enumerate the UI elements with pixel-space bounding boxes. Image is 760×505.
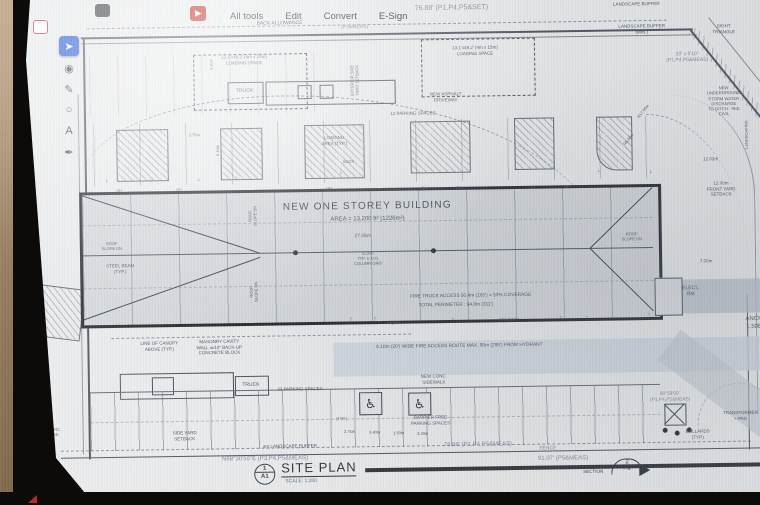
plan-label: ↑ xyxy=(559,316,562,324)
acrobat-logo-icon[interactable] xyxy=(190,6,206,21)
loading-area-hatch xyxy=(304,124,365,179)
parking-row-north xyxy=(93,116,654,186)
plan-label: ↓ xyxy=(339,170,342,178)
plan-label: BARRIER FREE PARKING SPACES xyxy=(411,414,450,426)
plan-label: ROOF SLOPE DN xyxy=(248,282,258,302)
plan-label: 78.88' (P1,P4,P5&MEAS) xyxy=(444,441,512,450)
quick-tools-panel: ➤◉✎○A✒ xyxy=(58,36,80,164)
acrobat-menu-bar: All toolsEditConvertE-Sign xyxy=(230,6,429,24)
plan-label: 12 PARKING SPACES xyxy=(390,110,435,116)
wheelchair-glyph: ♿ xyxy=(414,396,426,412)
menu-item-e-sign[interactable]: E-Sign xyxy=(379,11,408,22)
plan-label: 88°59'00" (P1,P4,P5&MEAS) xyxy=(650,391,690,404)
plan-label: 6.10m TYP. U.N.O. COLUMN GRID xyxy=(354,250,383,265)
landscape-island xyxy=(220,128,263,181)
plan-label: ↓ xyxy=(105,178,108,186)
comment-tool[interactable]: ◉ xyxy=(60,59,78,77)
pencil-tool[interactable]: ✎ xyxy=(60,80,78,98)
menu-item-all-tools[interactable]: All tools xyxy=(230,11,263,22)
plan-label: 3.40m xyxy=(369,430,380,435)
wheelchair-icon: ♿ xyxy=(359,392,382,415)
plan-label: LINE OF CANOPY ABOVE (TYP.) xyxy=(140,340,178,352)
plan-label: ROOF SLOPE DN xyxy=(622,231,642,241)
plan-label: ↑ xyxy=(451,317,454,325)
plan-label: OH xyxy=(456,186,461,190)
plan-label: (P5&MEAS) xyxy=(341,24,368,31)
bollard xyxy=(675,431,680,436)
plan-label: OH xyxy=(564,185,569,189)
plan-label: TOTAL PERIMETER : 94.8m (311') xyxy=(418,302,493,309)
plan-label: OH xyxy=(116,189,121,193)
landscape-island xyxy=(514,117,555,170)
section-sheet: A1 xyxy=(624,465,631,471)
wheelchair-glyph: ♿ xyxy=(365,396,377,412)
plan-label: WALKWAY xyxy=(499,316,519,321)
plan-label: OH xyxy=(326,187,331,191)
plan-annotations: BACK ALLOWANCE76.88' (P1,P4,P5&SET)(P5&M… xyxy=(0,0,756,6)
plan-label: 12.02m xyxy=(703,156,718,162)
shape-tool[interactable]: ○ xyxy=(60,101,78,119)
plan-label: ↑ xyxy=(349,317,352,325)
plan-label: 4.30m xyxy=(209,59,214,70)
plan-label: NEW UNDERGROUND STORM WATER DISCHARGE TO… xyxy=(707,85,741,117)
menu-item-convert[interactable]: Convert xyxy=(324,11,357,22)
plan-label: EXTERIOR SIDE YARD SETBACK xyxy=(349,65,359,96)
column-marker xyxy=(293,250,298,255)
plan-label: FENCE xyxy=(539,445,556,452)
plan-label: 2.75m xyxy=(189,132,200,137)
plan-label: (TYP.) xyxy=(336,416,347,421)
plan-label: 91.07' (P5&MEAS) xyxy=(538,455,588,463)
plan-label: N68°30'50"E (P3,P4,P5&MEAS) xyxy=(222,455,308,464)
plan-label: ELEC'L RM xyxy=(682,285,699,298)
plan-label: 2.75m xyxy=(344,429,355,434)
plan-label: TRUCK xyxy=(242,382,259,389)
detail-marker: 1 A1 xyxy=(254,464,275,485)
plan-label: STEEL BEAM (TYP.) xyxy=(106,263,134,275)
monitor-bezel-bottom xyxy=(0,492,760,505)
plan-label: BOLLARDS (TYP.) xyxy=(686,429,710,441)
plan-label: LANDSCAPE BUFFER (MIN.) xyxy=(618,23,665,35)
plan-label: NEW ASPHALT DRIVEWAY xyxy=(430,91,462,103)
plan-label: 23 PARKING SPACES xyxy=(277,386,322,392)
plan-label: ANCH 1.50E xyxy=(745,316,760,331)
plan-label: ↓ xyxy=(197,177,200,185)
detail-sheet: A1 xyxy=(255,472,274,482)
plan-label: FRONT xyxy=(386,320,400,325)
plan-label: ↓ xyxy=(149,178,152,186)
menu-item-edit[interactable]: Edit xyxy=(285,11,301,22)
sign-tool[interactable]: ✒ xyxy=(60,143,78,161)
pages-panel-icon[interactable] xyxy=(95,4,110,17)
column-marker xyxy=(431,248,436,253)
plan-label: ↓ xyxy=(649,169,652,177)
plan-label: SIDE YARD SETBACK xyxy=(173,430,197,442)
detail-number: 1 xyxy=(263,466,266,472)
plan-label: BACK xyxy=(343,159,354,164)
acrobat-logo-glyph xyxy=(195,10,202,17)
plan-label: TRUCK xyxy=(236,88,253,95)
plan-label: SIGHT TRIANGLE xyxy=(712,23,735,35)
monitor-screen: NEW ONE STOREY BUILDING AREA = 13,200 ft… xyxy=(0,0,760,505)
plan-label: NEW CONC. SIDEWALK xyxy=(421,373,447,385)
plan-label: 13.1'x49.2' (4m x 15m) LOADING SPACE xyxy=(221,54,267,66)
building-area-label: AREA = 13,200 ft² (1226m²) xyxy=(330,216,404,223)
plan-label: ↓ xyxy=(597,168,600,176)
plan-label: 20' x 9'10" (P1,P4,P5&MEAS) xyxy=(666,51,708,64)
plan-label: LANDSCAPING xyxy=(744,120,749,149)
plan-label: ROOF SLOPE DN xyxy=(102,241,122,251)
plan-label: TRANSFORMER + PAD xyxy=(723,410,758,422)
export-pdf-icon[interactable] xyxy=(33,20,48,34)
pdf-site-plan-canvas[interactable]: NEW ONE STOREY BUILDING AREA = 13,200 ft… xyxy=(0,0,760,505)
plan-label: ↑ xyxy=(647,312,650,320)
plan-label: OH xyxy=(529,186,534,190)
plan-label: 6.10m xyxy=(215,145,220,156)
landscape-island xyxy=(116,129,169,182)
landscape-island xyxy=(410,121,471,174)
plan-label: 12.00m FRONT YARD SETBACK xyxy=(707,180,736,197)
drawing-border-line xyxy=(365,462,760,472)
text-tool[interactable]: A xyxy=(60,122,78,140)
truck-wheel-north xyxy=(320,85,334,99)
plan-label: 27.06m xyxy=(354,233,371,239)
plan-label: OH xyxy=(421,186,426,190)
section-label: SECTION xyxy=(583,469,603,474)
plan-label: 3m LANDSCAPE BUFFER xyxy=(263,443,317,449)
wheelchair-icon: ♿ xyxy=(408,392,431,415)
plan-label: OH xyxy=(176,188,181,192)
plan-label: ↑ xyxy=(585,315,588,323)
plan-label: LANDSCAPE BUFFER xyxy=(613,1,660,7)
electrical-room-outline xyxy=(654,278,683,316)
plan-label: LOADING AREA (TYP.) xyxy=(321,135,347,147)
truck-cab-north xyxy=(298,85,312,99)
plan-label: ↑ xyxy=(373,316,376,324)
plan-label: 1.50m xyxy=(393,430,404,435)
plan-label: 3.40m xyxy=(417,431,428,436)
plan-label: ROOF SLOPE DN xyxy=(247,206,257,226)
sheet-scale: SCALE: 1:200 xyxy=(285,478,317,484)
plan-label: 7.00m xyxy=(700,258,713,264)
section-arrow-icon xyxy=(639,464,656,476)
bollard xyxy=(663,428,668,433)
photo-of-monitor: NEW ONE STOREY BUILDING AREA = 13,200 ft… xyxy=(0,0,760,505)
plan-label: 13.1'x49.2' (4m x 15m) LOADING SPACE xyxy=(452,45,498,57)
property-line-north xyxy=(81,28,693,39)
select-tool[interactable]: ➤ xyxy=(59,36,79,56)
plan-label: MASONRY CAVITY WALL w/10" BACK-UP CONCRE… xyxy=(197,339,243,357)
